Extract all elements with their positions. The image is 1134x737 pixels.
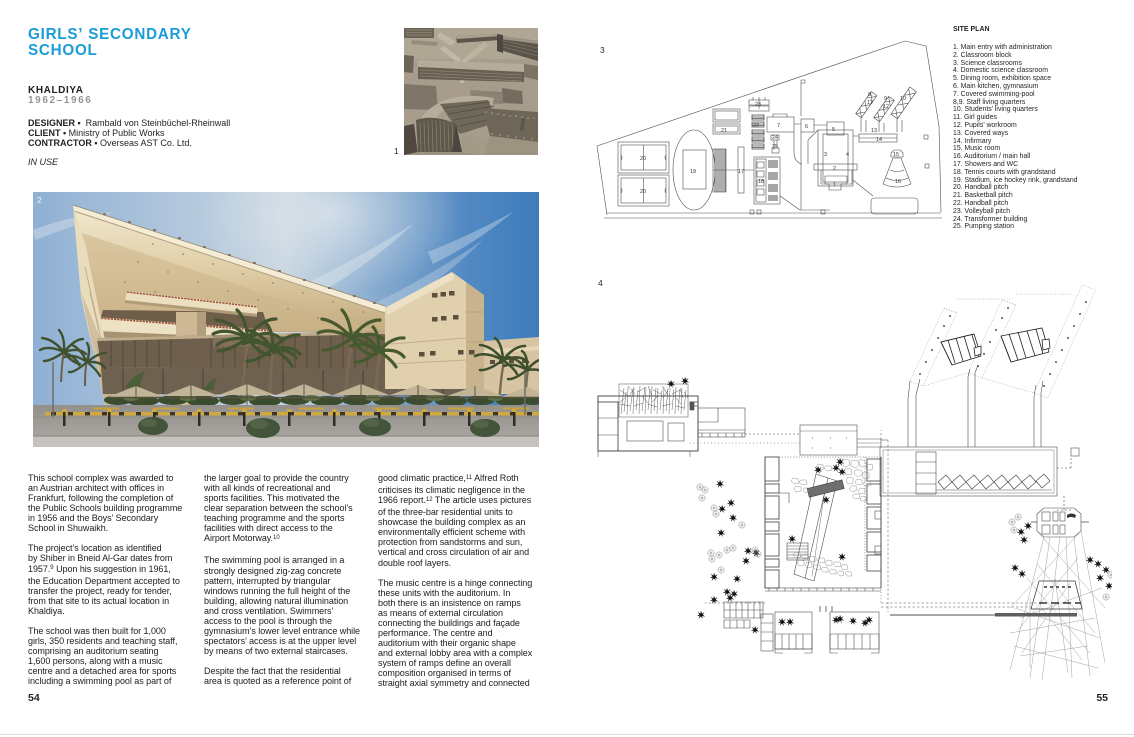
svg-text:11: 11 xyxy=(867,100,873,106)
svg-text:20: 20 xyxy=(640,156,646,162)
svg-text:19: 19 xyxy=(690,169,696,175)
svg-text:15: 15 xyxy=(893,152,899,158)
svg-text:3: 3 xyxy=(824,152,827,158)
svg-text:13: 13 xyxy=(871,128,877,134)
svg-text:23: 23 xyxy=(755,102,761,108)
svg-text:9: 9 xyxy=(884,96,887,102)
svg-text:2: 2 xyxy=(833,166,836,172)
svg-text:14: 14 xyxy=(876,137,882,143)
svg-text:6: 6 xyxy=(805,124,808,130)
svg-text:5: 5 xyxy=(832,127,835,133)
svg-text:1: 1 xyxy=(833,182,836,188)
svg-text:16: 16 xyxy=(895,179,901,185)
svg-text:22: 22 xyxy=(753,123,759,129)
svg-text:7: 7 xyxy=(777,123,780,129)
svg-text:10: 10 xyxy=(900,96,906,102)
svg-text:17: 17 xyxy=(738,169,744,175)
svg-text:8: 8 xyxy=(868,92,871,98)
svg-text:18: 18 xyxy=(758,179,764,185)
svg-text:25: 25 xyxy=(772,144,778,150)
svg-text:20: 20 xyxy=(640,189,646,195)
svg-text:24: 24 xyxy=(772,135,778,141)
svg-text:4: 4 xyxy=(846,152,849,158)
svg-text:21: 21 xyxy=(721,128,727,134)
svg-text:12: 12 xyxy=(883,104,889,110)
